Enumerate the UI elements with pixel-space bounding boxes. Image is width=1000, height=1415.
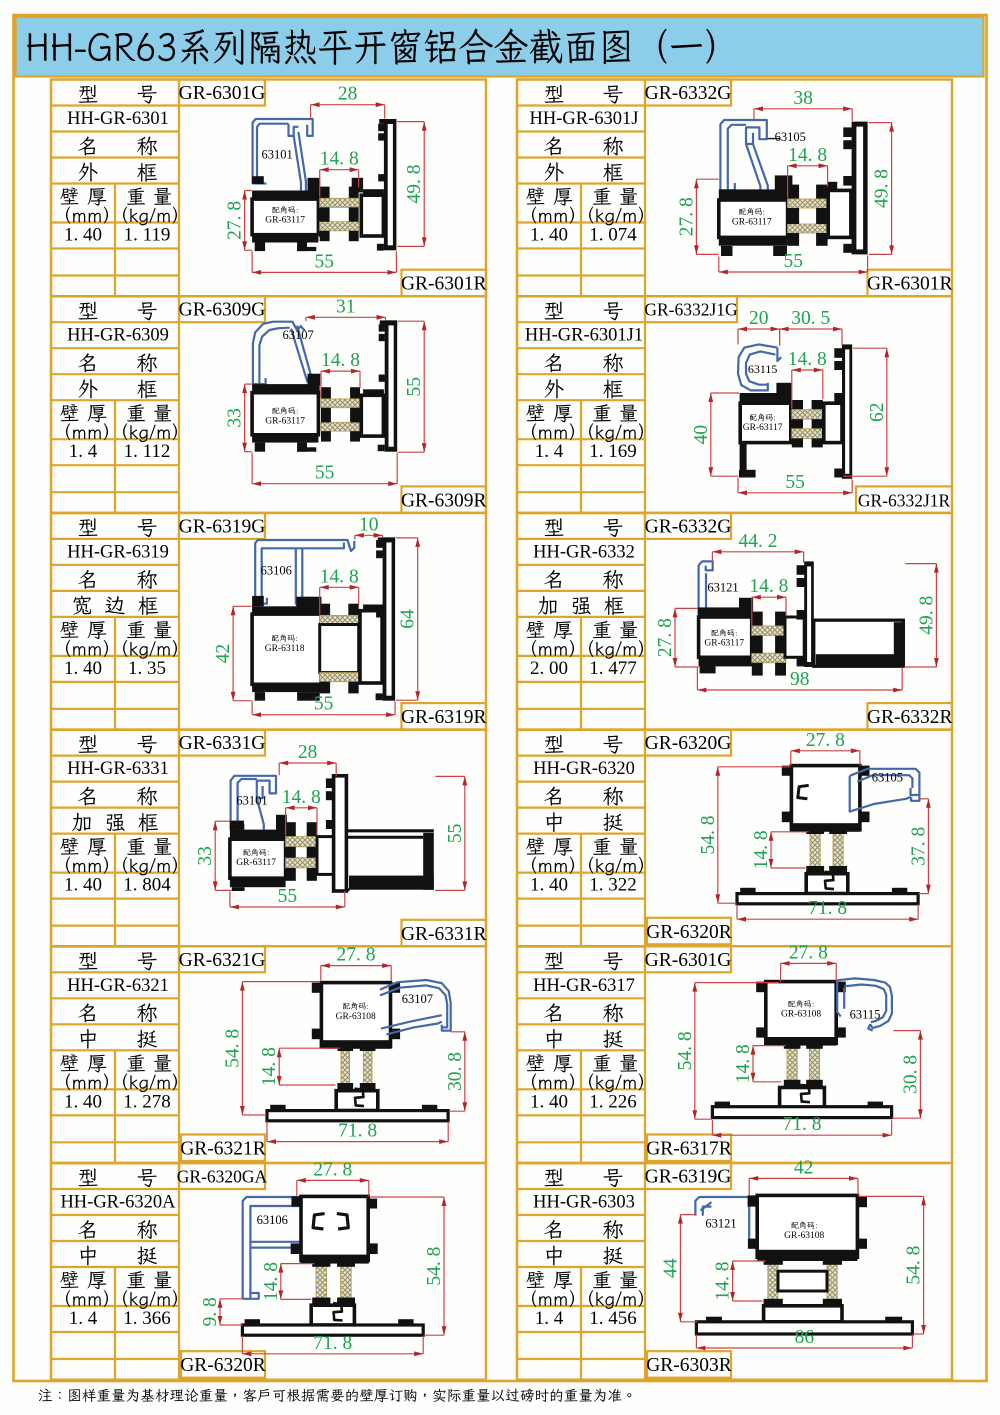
svg-text:49. 8: 49. 8 — [872, 169, 893, 208]
svg-text:GR-6332J1G: GR-6332J1G — [644, 300, 738, 320]
svg-text:1. 40: 1. 40 — [530, 875, 568, 896]
svg-text:HH-GR-6301: HH-GR-6301 — [67, 109, 169, 129]
svg-text:40: 40 — [691, 425, 712, 445]
svg-text:63107: 63107 — [282, 328, 313, 342]
svg-text:54. 8: 54. 8 — [675, 1031, 696, 1070]
svg-text:28: 28 — [298, 742, 318, 763]
svg-text:GR-6319G: GR-6319G — [179, 516, 266, 537]
svg-text:55: 55 — [314, 694, 334, 715]
svg-text:GR-6303R: GR-6303R — [646, 1355, 732, 1376]
svg-text:HH-GR-6320A: HH-GR-6320A — [60, 1193, 176, 1213]
svg-text:14. 8: 14. 8 — [749, 576, 788, 597]
svg-text:27. 8: 27. 8 — [655, 618, 676, 657]
svg-text:GR-6319R: GR-6319R — [401, 707, 487, 728]
svg-text:54. 8: 54. 8 — [904, 1246, 925, 1285]
svg-text:33: 33 — [225, 408, 246, 428]
svg-text:63121: 63121 — [707, 580, 738, 594]
svg-text:1. 4: 1. 4 — [69, 1308, 98, 1329]
svg-text:33: 33 — [195, 846, 216, 866]
svg-text:27. 8: 27. 8 — [806, 730, 845, 751]
svg-text:GR-63117: GR-63117 — [743, 423, 783, 433]
svg-text:71. 8: 71. 8 — [808, 898, 847, 919]
svg-text:14. 8: 14. 8 — [282, 787, 321, 808]
svg-text:HH-GR-6303: HH-GR-6303 — [533, 1193, 635, 1213]
svg-text:HH-GR-6301J1: HH-GR-6301J1 — [525, 326, 643, 346]
svg-text:GR-63118: GR-63118 — [265, 644, 305, 654]
svg-text:HH-GR-6332: HH-GR-6332 — [533, 542, 635, 562]
svg-text:55: 55 — [315, 251, 335, 272]
svg-text:1. 40: 1. 40 — [64, 225, 102, 246]
svg-text:1. 40: 1. 40 — [64, 658, 102, 679]
svg-text:GR-63117: GR-63117 — [236, 858, 276, 868]
svg-text:GR-63108: GR-63108 — [781, 1010, 821, 1020]
svg-text:GR-63117: GR-63117 — [732, 217, 772, 227]
svg-text:14. 8: 14. 8 — [320, 149, 359, 170]
svg-text:HH-GR-6331: HH-GR-6331 — [67, 759, 169, 779]
svg-text:98: 98 — [790, 669, 810, 690]
svg-text:14. 8: 14. 8 — [733, 1044, 754, 1083]
svg-text:HH-GR-6321: HH-GR-6321 — [67, 976, 169, 996]
svg-text:55: 55 — [404, 377, 425, 397]
svg-text:GR-6319G: GR-6319G — [645, 1167, 732, 1188]
svg-text:63115: 63115 — [748, 362, 778, 376]
svg-text:14. 8: 14. 8 — [259, 1047, 280, 1086]
svg-text:1. 278: 1. 278 — [123, 1091, 171, 1112]
svg-text:GR-6320R: GR-6320R — [646, 922, 732, 943]
svg-text:1. 119: 1. 119 — [124, 225, 171, 246]
svg-text:1. 4: 1. 4 — [69, 441, 98, 462]
svg-text:GR-63117: GR-63117 — [265, 216, 305, 226]
svg-text:27. 8: 27. 8 — [789, 942, 828, 963]
svg-text:44: 44 — [660, 1258, 681, 1278]
svg-text:49. 8: 49. 8 — [916, 596, 937, 635]
svg-text:30. 5: 30. 5 — [791, 308, 830, 329]
svg-text:71. 8: 71. 8 — [783, 1114, 822, 1135]
svg-text:63105: 63105 — [872, 771, 903, 785]
svg-text:2. 00: 2. 00 — [530, 658, 568, 679]
svg-text:1. 366: 1. 366 — [123, 1308, 171, 1329]
svg-text:HH-GR-6309: HH-GR-6309 — [67, 326, 169, 346]
svg-text:1. 456: 1. 456 — [589, 1308, 637, 1329]
svg-text:GR-63108: GR-63108 — [336, 1012, 376, 1022]
svg-text:42: 42 — [213, 644, 234, 664]
svg-text:55: 55 — [278, 886, 298, 907]
svg-text:GR-6331R: GR-6331R — [401, 924, 487, 945]
svg-text:1. 4: 1. 4 — [535, 1308, 564, 1329]
svg-text:1. 35: 1. 35 — [128, 658, 166, 679]
svg-text:GR-6309G: GR-6309G — [179, 300, 266, 321]
svg-text:GR-6331G: GR-6331G — [179, 733, 266, 754]
svg-text:44. 2: 44. 2 — [739, 531, 778, 552]
svg-text:14. 8: 14. 8 — [261, 1262, 282, 1301]
svg-text:GR-6320GA: GR-6320GA — [177, 1167, 268, 1187]
svg-text:54. 8: 54. 8 — [222, 1029, 243, 1068]
svg-text:62: 62 — [867, 402, 888, 422]
svg-text:1. 477: 1. 477 — [589, 658, 637, 679]
svg-text:HH-GR-6317: HH-GR-6317 — [533, 976, 635, 996]
svg-text:55: 55 — [315, 463, 335, 484]
svg-text:GR-63117: GR-63117 — [265, 416, 305, 426]
svg-text:27. 8: 27. 8 — [676, 197, 697, 236]
svg-text:GR-6320G: GR-6320G — [645, 733, 732, 754]
svg-text:1. 804: 1. 804 — [123, 875, 171, 896]
svg-text:GR-6332R: GR-6332R — [867, 707, 953, 728]
svg-text:63105: 63105 — [775, 130, 806, 144]
svg-text:20: 20 — [749, 308, 769, 329]
svg-text:54. 8: 54. 8 — [424, 1247, 445, 1286]
svg-text:GR-63117: GR-63117 — [704, 639, 744, 649]
svg-text:1. 40: 1. 40 — [64, 1091, 102, 1112]
svg-text:30. 8: 30. 8 — [445, 1052, 466, 1091]
svg-text:GR-6301G: GR-6301G — [179, 83, 266, 104]
svg-text:42: 42 — [794, 1157, 814, 1178]
svg-text:28: 28 — [338, 84, 358, 105]
svg-text:55: 55 — [783, 251, 803, 272]
svg-text:86: 86 — [795, 1327, 815, 1348]
svg-text:14. 8: 14. 8 — [321, 350, 360, 371]
svg-text:1. 112: 1. 112 — [124, 441, 171, 462]
svg-text:63101: 63101 — [236, 794, 267, 808]
svg-text:HH-GR-6301J: HH-GR-6301J — [530, 109, 639, 129]
svg-text:GR-6321G: GR-6321G — [179, 950, 266, 971]
svg-text:1. 40: 1. 40 — [530, 1091, 568, 1112]
svg-text:55: 55 — [445, 824, 466, 844]
svg-text:1. 40: 1. 40 — [64, 875, 102, 896]
svg-text:63121: 63121 — [705, 1217, 736, 1231]
svg-text:GR-6301R: GR-6301R — [867, 274, 953, 295]
svg-text:55: 55 — [785, 472, 805, 493]
svg-text:GR-6317R: GR-6317R — [646, 1139, 732, 1160]
svg-text:GR-6321R: GR-6321R — [180, 1139, 266, 1160]
svg-text:1. 226: 1. 226 — [589, 1091, 637, 1112]
svg-text:14. 8: 14. 8 — [713, 1262, 734, 1301]
svg-text:1. 074: 1. 074 — [589, 225, 637, 246]
svg-text:38: 38 — [793, 88, 813, 109]
svg-text:GR-6301R: GR-6301R — [401, 274, 487, 295]
svg-text:63101: 63101 — [261, 148, 292, 162]
svg-text:14. 8: 14. 8 — [751, 830, 772, 869]
svg-text:27. 8: 27. 8 — [337, 945, 376, 966]
svg-text:GR-6301G: GR-6301G — [645, 950, 732, 971]
svg-text:14. 8: 14. 8 — [788, 145, 827, 166]
svg-text:14. 8: 14. 8 — [320, 566, 359, 587]
svg-text:10: 10 — [359, 514, 379, 535]
svg-text:GR-6309R: GR-6309R — [401, 490, 487, 511]
svg-text:1. 40: 1. 40 — [530, 225, 568, 246]
svg-text:30. 8: 30. 8 — [900, 1055, 921, 1094]
svg-text:HH-GR-6319: HH-GR-6319 — [67, 542, 169, 562]
svg-text:GR-63108: GR-63108 — [784, 1231, 824, 1241]
svg-text:GR-6332J1R: GR-6332J1R — [858, 490, 951, 510]
svg-text:71. 8: 71. 8 — [338, 1121, 377, 1142]
svg-text:63115: 63115 — [850, 1007, 881, 1021]
svg-text:1. 322: 1. 322 — [589, 875, 637, 896]
svg-text:GR-6332G: GR-6332G — [645, 516, 732, 537]
svg-text:71. 8: 71. 8 — [313, 1333, 352, 1354]
svg-text:GR-6320R: GR-6320R — [180, 1355, 266, 1376]
svg-text:37. 8: 37. 8 — [908, 827, 929, 866]
svg-text:27. 8: 27. 8 — [225, 201, 246, 240]
svg-text:63106: 63106 — [261, 563, 292, 577]
svg-text:1. 169: 1. 169 — [589, 441, 637, 462]
svg-text:54. 8: 54. 8 — [698, 816, 719, 855]
svg-text:64: 64 — [398, 609, 419, 629]
svg-text:9. 8: 9. 8 — [200, 1297, 221, 1326]
svg-text:1. 4: 1. 4 — [535, 441, 564, 462]
svg-text:49. 8: 49. 8 — [404, 165, 425, 204]
svg-text:14. 8: 14. 8 — [788, 349, 827, 370]
svg-text:63107: 63107 — [402, 992, 433, 1006]
svg-text:GR-6332G: GR-6332G — [645, 83, 732, 104]
svg-text:HH-GR-6320: HH-GR-6320 — [533, 759, 635, 779]
svg-text:31: 31 — [336, 296, 356, 317]
svg-text:63106: 63106 — [257, 1213, 288, 1227]
svg-text:27. 8: 27. 8 — [313, 1159, 352, 1180]
